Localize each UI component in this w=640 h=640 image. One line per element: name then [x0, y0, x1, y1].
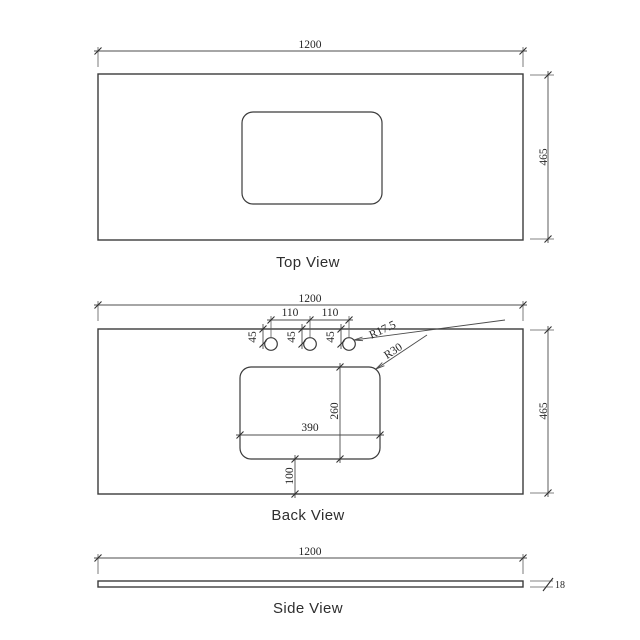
dimension-text-width: 1200: [299, 546, 322, 558]
dimension-text-cutout-width: 390: [301, 422, 319, 434]
tap-hole-right: [343, 338, 356, 351]
dimension-text-thickness: 18: [555, 580, 565, 591]
side-view: 1200 18 Side View: [94, 546, 565, 617]
dimension-text-width: 1200: [299, 39, 322, 51]
tap-hole-pitch-dimension: 110 110: [267, 307, 353, 337]
hole-radius-leader: R17.5: [354, 319, 505, 342]
top-view-benchtop-outline: [98, 74, 523, 240]
dimension-text-width: 1200: [299, 293, 322, 305]
tap-hole-left: [265, 338, 278, 351]
back-view: 1200 465 110 110 45: [94, 293, 554, 524]
dimension-text-cutout-radius: R30: [382, 341, 405, 362]
top-view-title: Top View: [276, 254, 340, 271]
leader-arrow: [354, 340, 363, 341]
dimension-text-depth: 465: [538, 148, 550, 166]
cutout-width-dimension: 390: [236, 422, 384, 439]
top-view: 1200 465 Top View: [94, 39, 554, 271]
dimension-text-cutout-height: 260: [329, 402, 341, 420]
cutout-bottom-offset-dimension: 100: [284, 455, 299, 498]
cutout-height-dimension: 260: [329, 363, 344, 463]
dimension-text-pitch-left: 110: [282, 307, 299, 319]
top-view-width-dimension: 1200: [94, 39, 527, 67]
side-view-thickness-dimension: 18: [530, 578, 565, 591]
top-view-sink-cutout: [242, 112, 382, 204]
top-view-depth-dimension: 465: [530, 71, 554, 243]
side-view-slab-outline: [98, 581, 523, 587]
dimension-tick: [543, 578, 553, 591]
back-view-sink-cutout: [240, 367, 380, 459]
side-view-title: Side View: [273, 600, 343, 617]
dimension-text-pitch-right: 110: [322, 307, 339, 319]
dimension-text-setback-3: 45: [325, 331, 337, 343]
back-view-benchtop-outline: [98, 329, 523, 494]
tap-hole-center: [304, 338, 317, 351]
dimension-text-height: 465: [538, 402, 550, 420]
dimension-text-cutout-bottom: 100: [284, 467, 296, 485]
dimension-text-setback-2: 45: [286, 331, 298, 343]
side-view-width-dimension: 1200: [94, 546, 527, 574]
dimension-text-hole-radius: R17.5: [368, 319, 398, 342]
back-view-width-dimension: 1200: [94, 293, 527, 321]
back-view-height-dimension: 465: [530, 326, 554, 497]
dimension-text-setback-1: 45: [247, 331, 259, 343]
drawing-svg: 1200 465 Top View 1200: [0, 0, 640, 640]
tap-hole-setback-dimensions: 45 45 45: [247, 324, 345, 349]
back-view-title: Back View: [271, 507, 344, 524]
cutout-radius-leader: R30: [376, 335, 427, 369]
technical-drawing-sheet: 1200 465 Top View 1200: [0, 0, 640, 640]
